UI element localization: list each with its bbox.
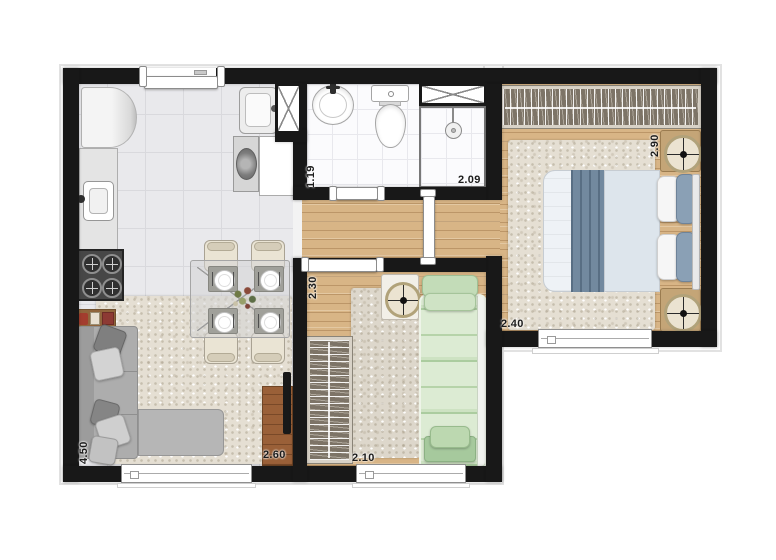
wall-bedroom2-left <box>293 258 307 482</box>
dimension-label-living-depth: 4.50 <box>78 441 91 464</box>
kitchen-sink-icon <box>83 181 114 221</box>
folded-blanket-top <box>430 426 470 448</box>
master-door <box>423 196 435 260</box>
hallway-floor <box>302 200 502 258</box>
wall-left <box>63 68 79 482</box>
laundry-tank-basin <box>245 93 271 127</box>
wall-mid-right <box>486 256 502 482</box>
door-jamb <box>420 189 436 197</box>
living-room-window <box>121 464 252 483</box>
laundry-tank-icon <box>239 87 278 134</box>
plate-icon <box>260 312 281 333</box>
window-handle-icon <box>365 471 374 479</box>
bedroom2-wardrobe <box>307 337 352 463</box>
plate-icon <box>214 312 235 333</box>
placemat <box>254 308 284 334</box>
sofa-chaise <box>138 409 224 456</box>
sofa-pillow <box>88 435 119 466</box>
bedroom2-door <box>307 259 377 272</box>
toilet-tank <box>371 85 409 102</box>
dimension-label-master-depth: 2.90 <box>649 134 662 157</box>
window-handle-icon <box>547 336 556 344</box>
window-handle-icon <box>130 471 139 479</box>
bathroom-door <box>336 187 378 200</box>
hallway-threshold <box>293 200 302 258</box>
kitchen-sink-basin <box>89 188 108 214</box>
single-bed-frame-edge <box>477 296 485 466</box>
bed-sheet-foot <box>604 170 660 292</box>
burner-icon <box>82 254 102 274</box>
door-jamb <box>377 186 385 201</box>
placemat <box>208 308 238 334</box>
tv-icon <box>283 372 291 434</box>
door-jamb <box>420 257 436 265</box>
wall-bathroom-right <box>486 84 502 200</box>
laundry-cabinet <box>259 136 295 196</box>
stove-icon <box>77 249 124 301</box>
window-sill <box>352 483 470 488</box>
door-jamb <box>217 66 225 87</box>
bedroom2-nightstand <box>381 274 419 320</box>
master-window <box>538 329 652 348</box>
burner-icon <box>82 278 102 298</box>
wall-right-master <box>701 68 717 347</box>
washing-machine-icon <box>233 136 259 192</box>
sofa-pillow <box>89 346 125 382</box>
bedroom2-window <box>356 464 466 483</box>
utility-shaft-icon <box>275 83 302 134</box>
dimension-label-bedroom2-depth: 2.30 <box>307 276 320 299</box>
door-jamb <box>329 186 337 201</box>
shower-head-icon <box>445 122 462 139</box>
window-sill <box>532 348 659 354</box>
lamp-icon <box>385 282 421 318</box>
lamp-icon <box>664 294 702 332</box>
shower-pipe <box>452 108 454 123</box>
fridge-icon <box>81 87 137 148</box>
nightstand <box>660 130 701 172</box>
shower-head-center <box>451 128 456 133</box>
entry-door <box>144 76 218 89</box>
dimension-label-master-width: 2.40 <box>501 318 524 331</box>
dimension-label-bathroom-width: 2.09 <box>458 174 481 187</box>
door-jamb <box>376 257 384 272</box>
nightstand <box>660 288 701 332</box>
niche-icon <box>419 83 487 106</box>
plate-icon <box>260 270 281 291</box>
decor-vase-icon <box>79 313 88 325</box>
entry-door-latch <box>194 70 207 75</box>
bath-faucet-handle <box>326 86 340 89</box>
single-bed-pillow <box>424 293 476 311</box>
bed-blanket <box>571 170 604 292</box>
dimension-label-bathroom-depth: 1.19 <box>305 165 318 188</box>
wall-bathroom-bottom <box>293 187 486 200</box>
burner-icon <box>102 254 122 274</box>
dimension-label-bedroom2-width: 2.10 <box>352 452 375 465</box>
window-sill <box>117 483 256 488</box>
door-jamb <box>301 257 309 272</box>
bath-sink-basin <box>319 92 347 118</box>
bed-headboard <box>692 174 700 290</box>
master-wardrobe <box>500 86 701 128</box>
dimension-label-living-width: 2.60 <box>263 449 286 462</box>
centerpiece-flowers-icon <box>229 285 259 311</box>
decor-box-icon <box>102 312 114 325</box>
door-jamb <box>139 66 147 87</box>
burner-icon <box>102 278 122 298</box>
washer-drum <box>236 148 257 180</box>
photo-frame-icon <box>90 312 100 325</box>
flush-button-icon <box>388 91 394 97</box>
lamp-icon <box>664 135 702 173</box>
floor-plan: 1.19 2.09 2.90 2.40 2.30 2.10 4.50 2.60 <box>0 0 776 560</box>
